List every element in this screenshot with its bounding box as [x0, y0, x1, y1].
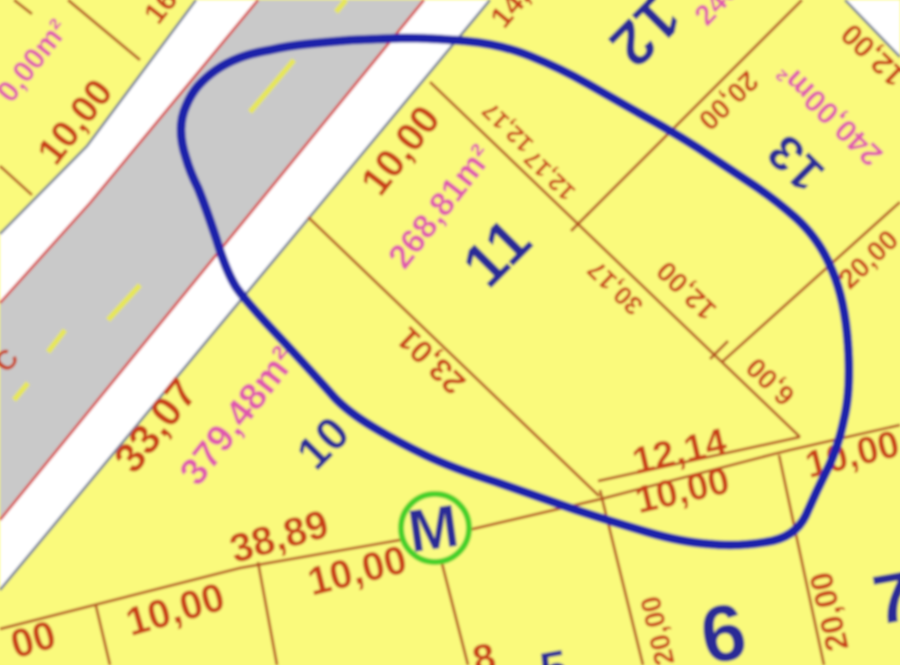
svg-text:M: M [404, 492, 463, 565]
